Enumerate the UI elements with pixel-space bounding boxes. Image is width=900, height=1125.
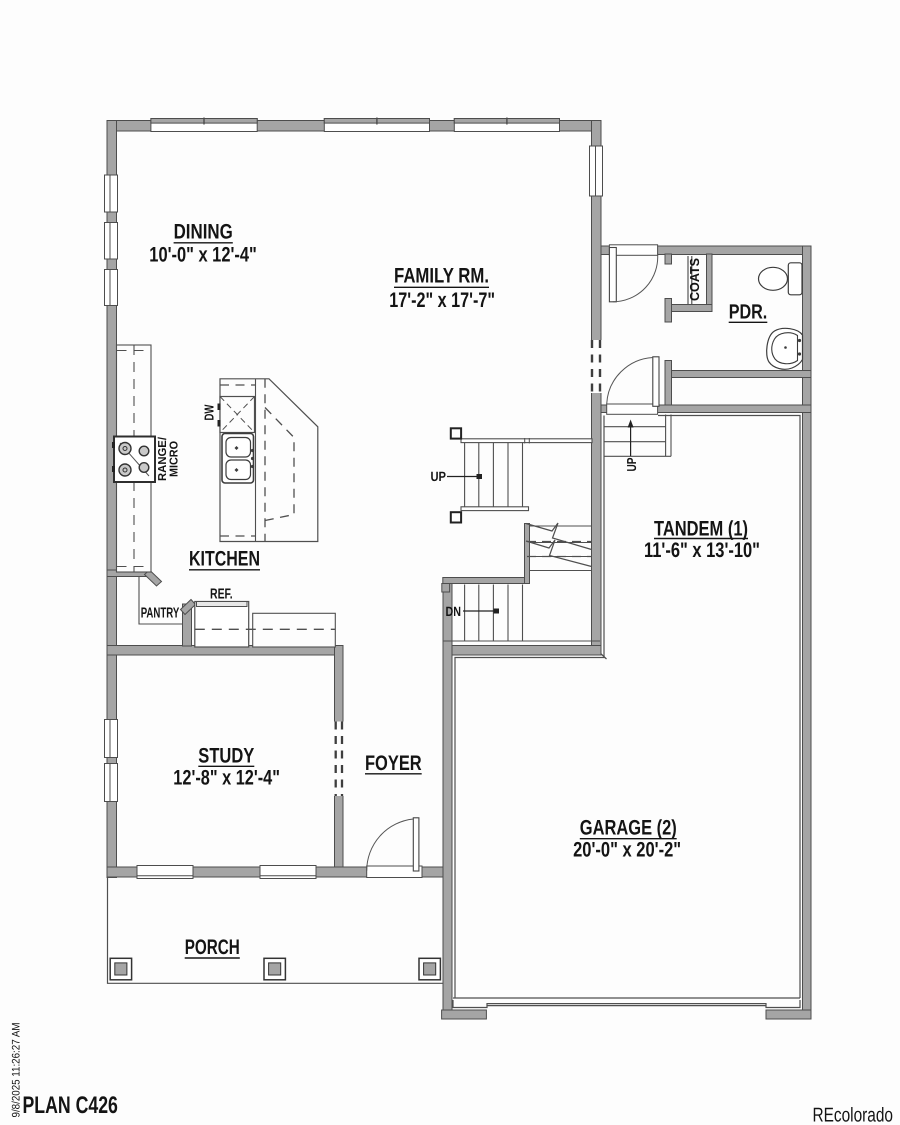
svg-text:20'-0" x 20'-2": 20'-0" x 20'-2": [573, 838, 681, 861]
svg-text:PLAN C426: PLAN C426: [23, 1092, 118, 1119]
svg-text:COATS: COATS: [687, 258, 702, 301]
svg-text:PANTRY: PANTRY: [141, 605, 180, 621]
svg-text:REcolorado: REcolorado: [813, 1105, 894, 1125]
svg-text:FAMILY RM.: FAMILY RM.: [394, 265, 489, 288]
svg-text:STUDY: STUDY: [198, 745, 254, 768]
svg-text:KITCHEN: KITCHEN: [189, 548, 260, 571]
svg-text:TANDEM (1): TANDEM (1): [654, 518, 748, 541]
svg-text:12'-8" x 12'-4": 12'-8" x 12'-4": [173, 767, 280, 790]
svg-text:10'-0" x 12'-4": 10'-0" x 12'-4": [149, 244, 256, 267]
svg-text:RANGE/: RANGE/: [157, 436, 169, 481]
svg-text:DW: DW: [202, 404, 217, 421]
svg-text:PDR.: PDR.: [729, 301, 768, 324]
svg-text:17'-2" x 17'-7": 17'-2" x 17'-7": [389, 289, 495, 312]
svg-text:UP: UP: [624, 457, 639, 471]
svg-text:DN: DN: [446, 604, 462, 619]
svg-text:FOYER: FOYER: [365, 752, 422, 775]
svg-text:DINING: DINING: [174, 220, 233, 243]
svg-text:REF.: REF.: [210, 587, 233, 603]
svg-text:PORCH: PORCH: [185, 936, 240, 959]
svg-text:MICRO: MICRO: [169, 441, 181, 477]
svg-text:GARAGE (2): GARAGE (2): [580, 817, 677, 840]
svg-text:UP: UP: [431, 469, 447, 484]
svg-text:9/8/2025 11:26:27 AM: 9/8/2025 11:26:27 AM: [11, 1023, 23, 1118]
svg-text:11'-6" x 13'-10": 11'-6" x 13'-10": [644, 539, 760, 562]
